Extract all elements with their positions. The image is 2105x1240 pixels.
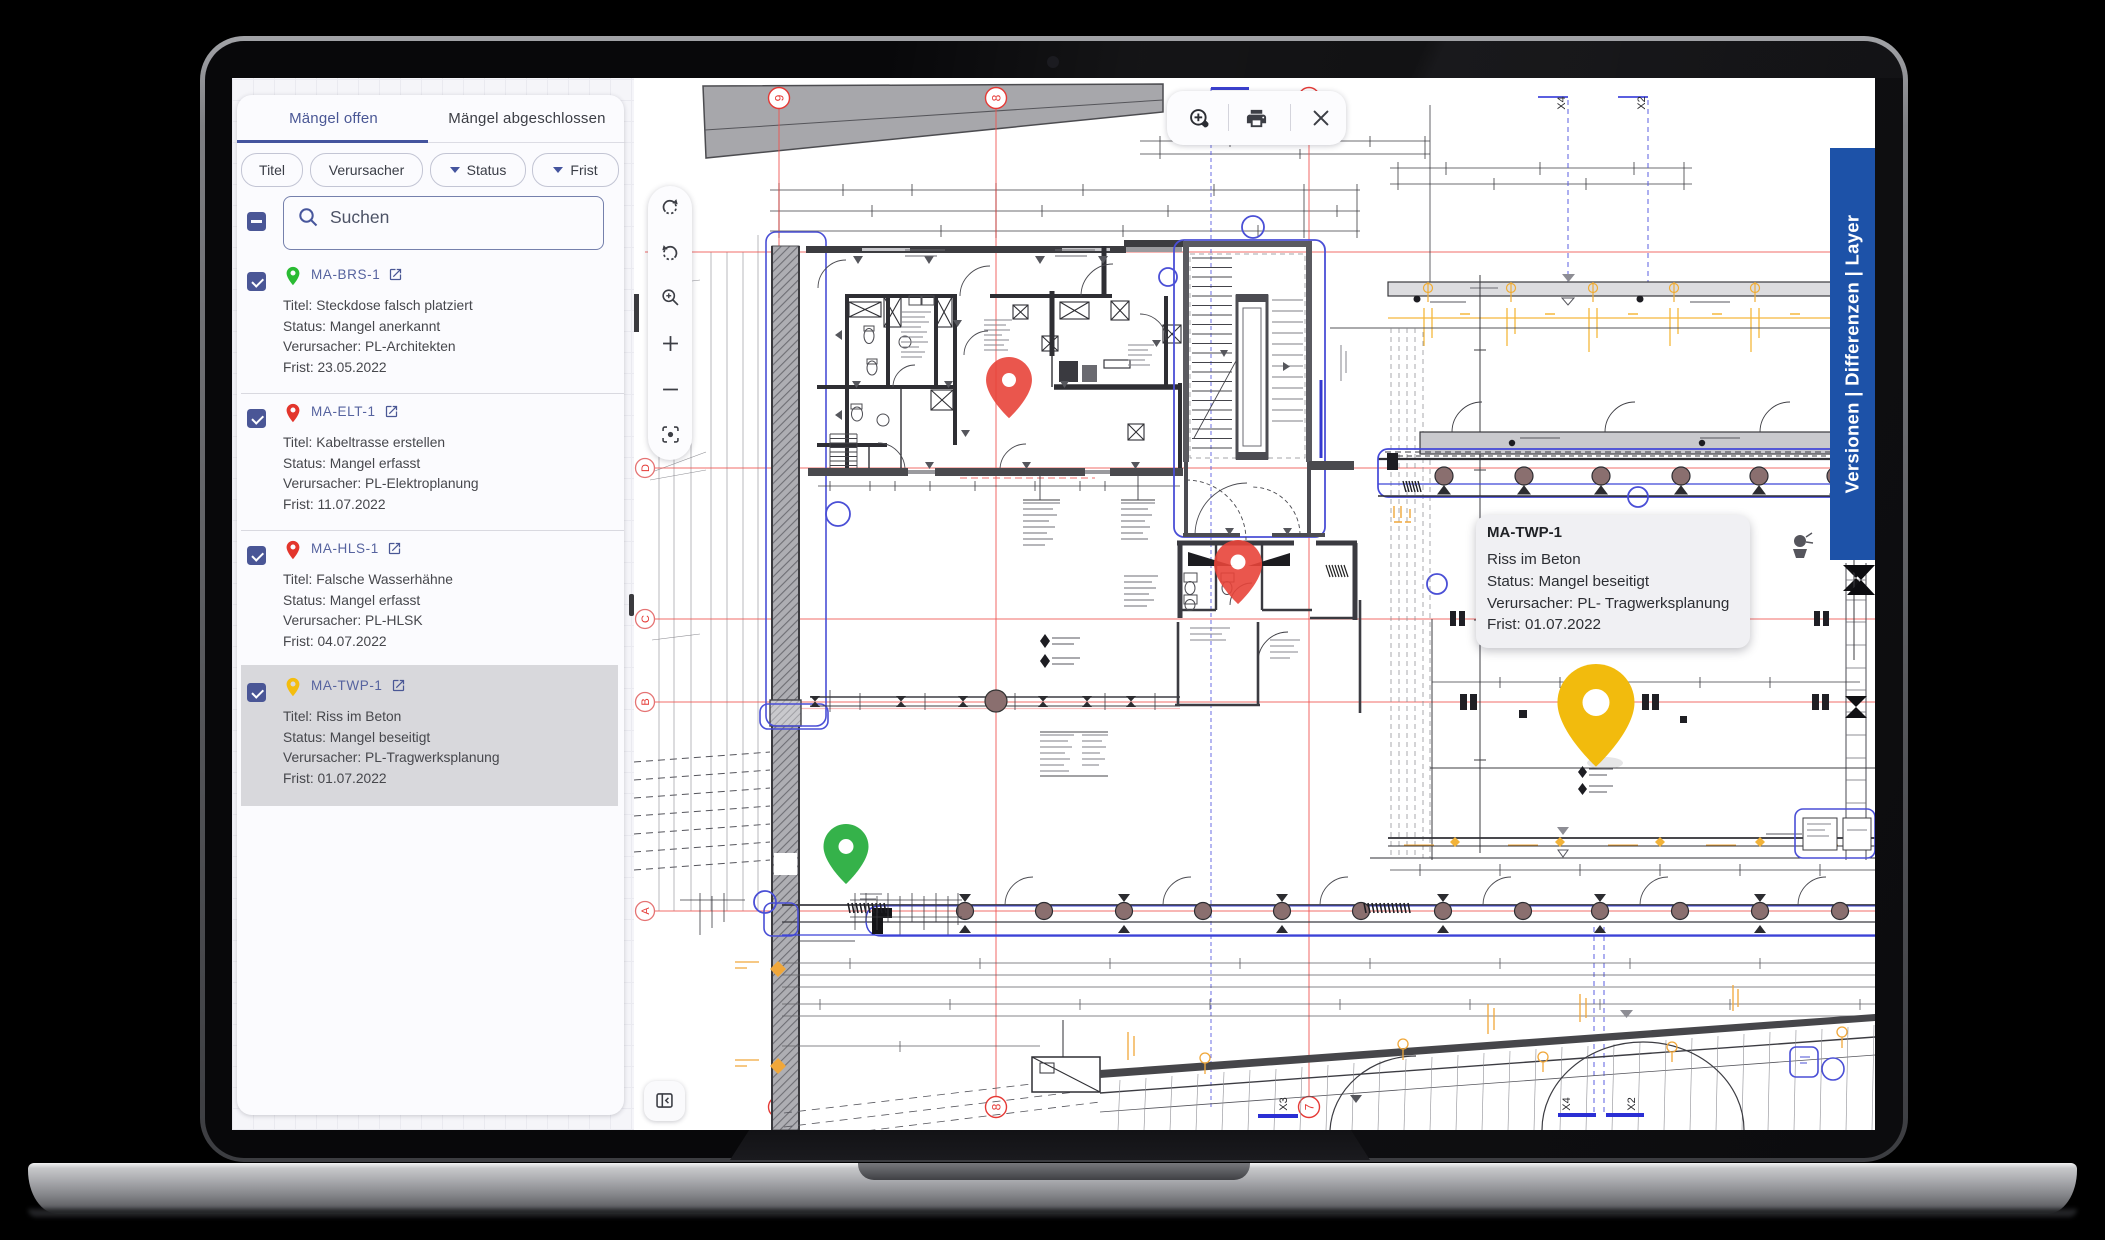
svg-text:C: C xyxy=(640,615,652,623)
svg-text:X2: X2 xyxy=(1636,96,1648,109)
svg-text:D: D xyxy=(640,464,652,472)
svg-text:X4: X4 xyxy=(1561,1097,1573,1110)
svg-text:9: 9 xyxy=(773,94,787,101)
svg-text:X2: X2 xyxy=(1626,1097,1638,1110)
svg-text:7: 7 xyxy=(1303,1103,1317,1110)
svg-text:8: 8 xyxy=(990,1103,1004,1110)
svg-text:B: B xyxy=(640,698,652,705)
svg-text:A: A xyxy=(640,907,652,915)
svg-text:X4: X4 xyxy=(1556,96,1568,109)
svg-text:8: 8 xyxy=(990,94,1004,101)
svg-text:X3: X3 xyxy=(1278,1097,1290,1110)
